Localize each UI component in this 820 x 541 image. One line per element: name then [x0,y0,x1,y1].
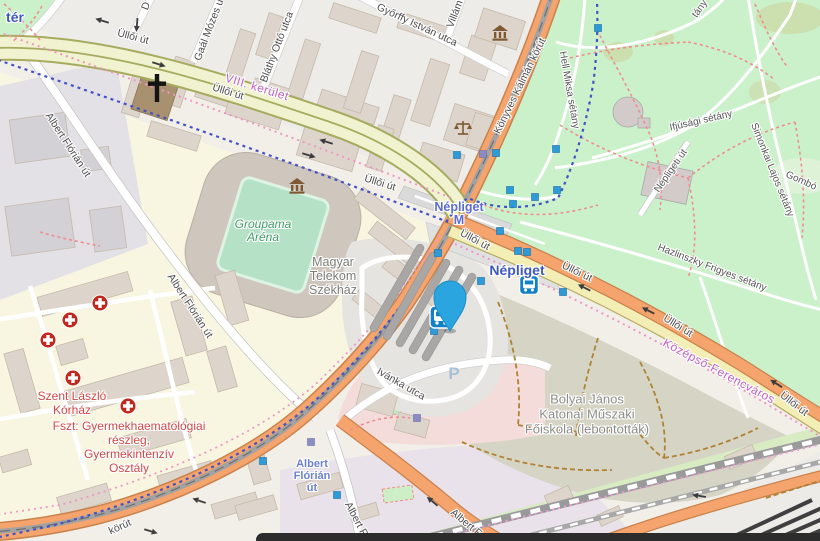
transit-stop-marker[interactable] [524,249,531,256]
map-graphics [0,0,820,541]
transit-stop-marker[interactable] [454,152,461,159]
transit-stop-marker[interactable] [480,151,487,158]
map-canvas[interactable]: Üllői út Üllői út Üllői út Üllői út Üllő… [0,0,820,541]
transit-stop-marker[interactable] [260,458,267,465]
transit-stop-marker[interactable] [560,289,567,296]
transit-stop-marker[interactable] [553,146,560,153]
transit-stop-marker[interactable] [497,228,504,235]
transit-stop-marker[interactable] [334,492,341,499]
bus-icon[interactable] [520,276,539,295]
transit-stop-marker[interactable] [510,201,517,208]
transit-stop-marker[interactable] [308,439,315,446]
transit-stop-marker[interactable] [532,194,539,201]
transit-stop-marker[interactable] [515,248,522,255]
transit-stop-marker[interactable] [507,187,514,194]
bottom-window-edge [256,533,820,541]
transit-stop-marker[interactable] [435,250,442,257]
transit-stop-marker[interactable] [493,150,500,157]
transit-stop-marker[interactable] [554,187,561,194]
transit-stop-marker[interactable] [595,25,602,32]
transit-stop-marker[interactable] [478,278,485,285]
transit-stop-marker[interactable] [414,415,421,422]
